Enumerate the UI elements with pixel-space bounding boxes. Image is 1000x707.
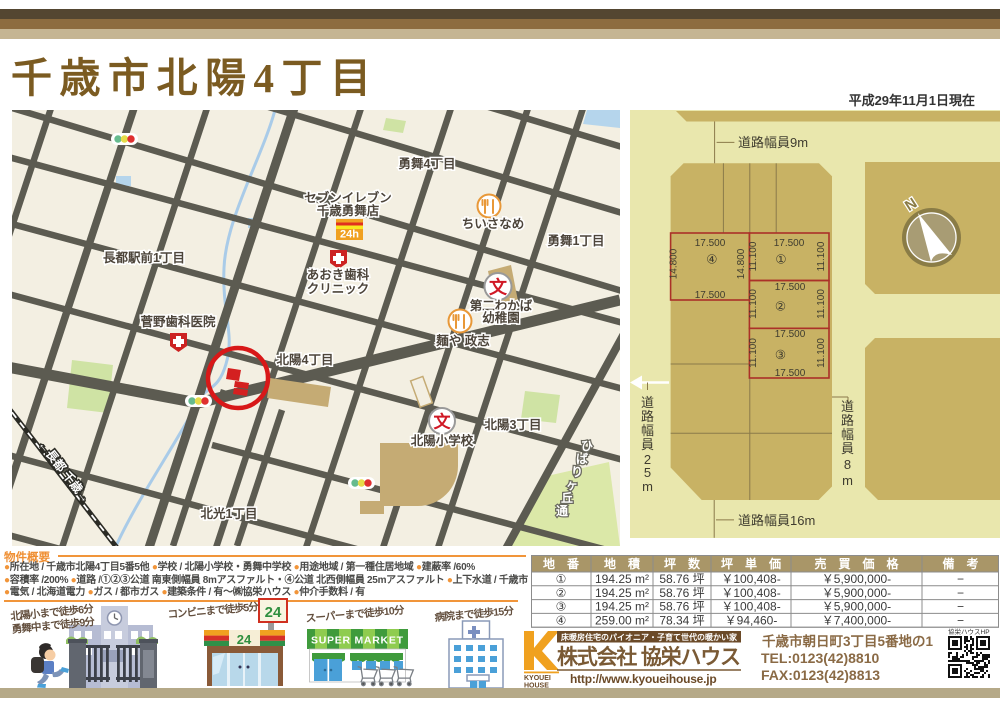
svg-text:￥100,408-: ￥100,408- — [721, 586, 780, 600]
svg-text:11.100: 11.100 — [816, 338, 827, 368]
svg-text:￥5,900,000-: ￥5,900,000- — [822, 586, 891, 600]
svg-text:千歳市朝日町3丁目5番地の1: 千歳市朝日町3丁目5番地の1 — [762, 633, 934, 649]
svg-text:②: ② — [556, 586, 567, 600]
svg-text:北陽小学校: 北陽小学校 — [411, 433, 474, 448]
svg-text:幅: 幅 — [641, 423, 654, 438]
svg-text:194.25 m²: 194.25 m² — [595, 586, 649, 600]
svg-text:11.100: 11.100 — [748, 338, 759, 368]
svg-text:③: ③ — [775, 348, 786, 362]
svg-text:259.00 m²: 259.00 m² — [595, 614, 649, 628]
svg-text:北光1丁目: 北光1丁目 — [201, 506, 258, 521]
svg-text:￥7,400,000-: ￥7,400,000- — [822, 614, 891, 628]
svg-text:千歳勇舞店: 千歳勇舞店 — [317, 203, 380, 218]
svg-text:④: ④ — [556, 614, 567, 628]
svg-text:KYOUEI: KYOUEI — [524, 675, 551, 682]
svg-text:11.100: 11.100 — [816, 241, 827, 271]
svg-text:坪 単 価: 坪 単 価 — [721, 556, 781, 571]
svg-text:坪 数: 坪 数 — [664, 556, 701, 571]
svg-text:￥5,900,000-: ￥5,900,000- — [822, 572, 891, 586]
svg-text:路: 路 — [641, 409, 654, 424]
svg-text:24: 24 — [265, 604, 282, 621]
svg-text:幅: 幅 — [841, 427, 854, 442]
svg-text:5: 5 — [644, 465, 651, 480]
svg-text:ば: ば — [576, 451, 588, 466]
svg-text:菅野歯科医院: 菅野歯科医院 — [140, 314, 216, 329]
svg-text:￥100,408-: ￥100,408- — [721, 572, 780, 586]
svg-text:員: 員 — [641, 437, 654, 452]
svg-text:文: 文 — [489, 277, 508, 298]
svg-text:文: 文 — [434, 412, 452, 432]
svg-text:路: 路 — [841, 413, 854, 428]
svg-text:ちいさなめ: ちいさなめ — [462, 217, 525, 231]
svg-text:道: 道 — [841, 399, 854, 414]
svg-text:24h: 24h — [340, 229, 359, 241]
svg-text:FAX:0123(42)8813: FAX:0123(42)8813 — [761, 667, 880, 683]
svg-text:m: m — [642, 479, 653, 494]
svg-text:長都駅前1丁目: 長都駅前1丁目 — [103, 250, 185, 265]
svg-text:11.100: 11.100 — [816, 289, 827, 319]
svg-text:地 番: 地 番 — [543, 556, 580, 571]
svg-text:セブンイレブン: セブンイレブン — [304, 190, 392, 205]
svg-text:通: 通 — [556, 503, 568, 518]
svg-text:勇舞4丁目: 勇舞4丁目 — [399, 156, 456, 171]
svg-text:−: − — [957, 586, 964, 600]
svg-text:TEL:0123(42)8810: TEL:0123(42)8810 — [761, 650, 880, 666]
svg-text:14.800: 14.800 — [669, 248, 680, 279]
svg-text:④: ④ — [706, 253, 717, 267]
svg-text:17.500: 17.500 — [775, 368, 806, 379]
svg-text:−: − — [957, 600, 964, 614]
svg-text:員: 員 — [841, 441, 854, 456]
svg-text:11.100: 11.100 — [748, 289, 759, 319]
svg-text:58.76 坪: 58.76 坪 — [659, 572, 704, 586]
svg-text:地 積: 地 積 — [604, 556, 641, 571]
svg-text:株式会社 協栄ハウス: 株式会社 協栄ハウス — [557, 645, 741, 669]
svg-text:備 考: 備 考 — [942, 556, 978, 571]
svg-text:58.76 坪: 58.76 坪 — [659, 586, 704, 600]
svg-text:17.500: 17.500 — [775, 329, 806, 340]
svg-text:③: ③ — [556, 600, 567, 614]
svg-text:m: m — [842, 473, 853, 488]
svg-text:①: ① — [556, 572, 567, 586]
svg-text:あおき歯科: あおき歯科 — [307, 267, 370, 282]
svg-text:58.76 坪: 58.76 坪 — [659, 600, 704, 614]
svg-text:24: 24 — [237, 632, 252, 647]
svg-text:①: ① — [775, 253, 786, 267]
svg-text:194.25 m²: 194.25 m² — [595, 600, 649, 614]
svg-text:http://www.kyoueihouse.jp: http://www.kyoueihouse.jp — [570, 672, 717, 686]
svg-text:HOUSE: HOUSE — [524, 683, 549, 689]
svg-text:17.500: 17.500 — [775, 282, 806, 293]
svg-text:11.100: 11.100 — [748, 241, 759, 271]
svg-text:床暖房住宅のパイオニア・子育て世代の暖かい家: 床暖房住宅のパイオニア・子育て世代の暖かい家 — [561, 632, 738, 642]
svg-text:丘: 丘 — [561, 490, 573, 505]
svg-text:麺や 政志: 麺や 政志 — [435, 333, 490, 348]
svg-text:194.25 m²: 194.25 m² — [595, 572, 649, 586]
svg-text:8: 8 — [844, 457, 851, 472]
svg-text:幼稚園: 幼稚園 — [482, 310, 520, 325]
svg-text:売 買 価 格: 売 買 価 格 — [814, 556, 899, 571]
svg-text:②: ② — [775, 300, 786, 314]
svg-text:17.500: 17.500 — [774, 238, 805, 249]
svg-text:−: − — [957, 614, 964, 628]
svg-text:道: 道 — [641, 395, 654, 410]
svg-text:17.500: 17.500 — [695, 290, 726, 301]
svg-text:ヶ: ヶ — [566, 478, 578, 492]
svg-text:￥100,408-: ￥100,408- — [721, 600, 780, 614]
svg-text:￥5,900,000-: ￥5,900,000- — [822, 600, 891, 614]
svg-text:り: り — [571, 465, 583, 479]
svg-text:￥94,460-: ￥94,460- — [725, 614, 778, 628]
svg-text:78.34 坪: 78.34 坪 — [659, 614, 704, 628]
svg-text:勇舞1丁目: 勇舞1丁目 — [548, 233, 605, 248]
svg-text:道路幅員9m: 道路幅員9m — [738, 135, 808, 150]
svg-text:17.500: 17.500 — [695, 238, 726, 249]
svg-text:ひ: ひ — [581, 439, 593, 453]
svg-text:道路幅員16m: 道路幅員16m — [738, 513, 815, 528]
svg-text:北陽3丁目: 北陽3丁目 — [485, 417, 542, 432]
svg-text:14.800: 14.800 — [736, 248, 747, 279]
svg-text:−: − — [957, 572, 964, 586]
svg-text:クリニック: クリニック — [307, 282, 370, 296]
svg-text:北陽4丁目: 北陽4丁目 — [277, 352, 334, 367]
svg-text:SUPER MARKET: SUPER MARKET — [311, 635, 404, 647]
